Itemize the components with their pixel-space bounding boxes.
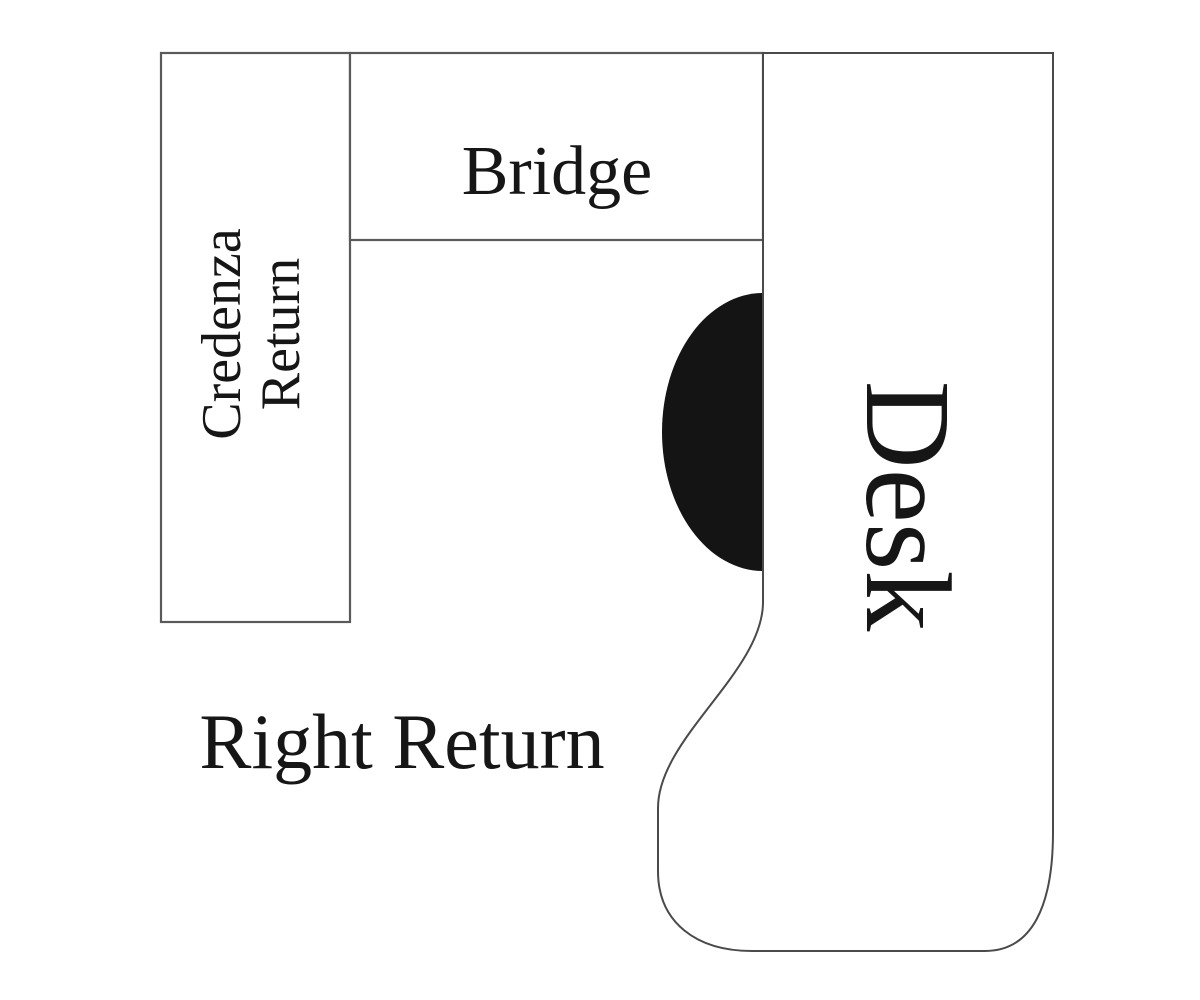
desk-label: Desk — [837, 381, 977, 632]
chair-shape — [662, 293, 763, 571]
credenza-return-label: Credenza Return — [193, 228, 311, 439]
right-return-label: Right Return — [199, 697, 604, 787]
credenza-return-label-line2: Return — [252, 228, 311, 439]
bridge-label: Bridge — [462, 132, 653, 212]
desk-layout-diagram: Credenza Return Bridge Desk Right Return — [0, 0, 1200, 1000]
credenza-return-label-line1: Credenza — [193, 228, 252, 439]
